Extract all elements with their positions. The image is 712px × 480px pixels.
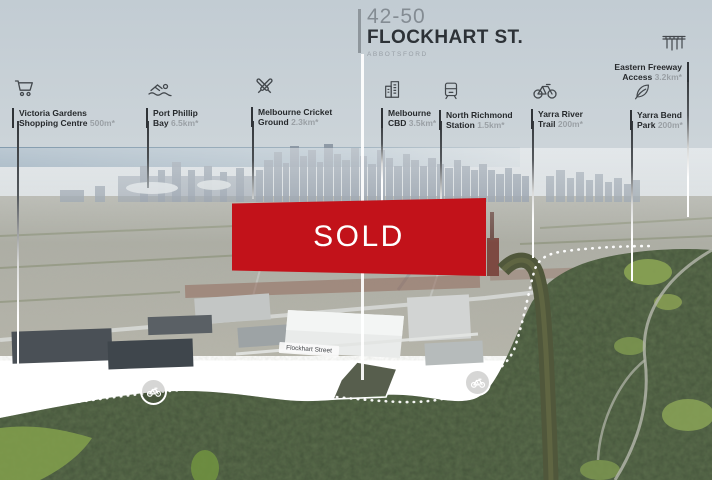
poi-port-phillip-bay: Port Phillip Bay 6.5km* xyxy=(146,76,198,128)
sold-label: SOLD xyxy=(313,220,405,254)
title-street-name: FLOCKHART ST. xyxy=(367,28,523,48)
swimmer-icon xyxy=(147,76,173,105)
poi-distance: 3.2km* xyxy=(655,72,682,82)
freeway-icon xyxy=(660,30,688,59)
leader-line xyxy=(631,121,633,281)
poi-distance: 6.5km* xyxy=(171,118,198,128)
bike-trail-badge xyxy=(464,369,491,396)
poi-yarra-river-trail: Yarra River Trail 200m* xyxy=(531,79,583,129)
train-icon xyxy=(440,80,462,107)
sold-banner: SOLD xyxy=(232,198,486,276)
title-accent-bar xyxy=(358,9,361,53)
bike-trail-badge xyxy=(140,378,167,405)
poi-melbourne-cbd: Melbourne CBD 3.5km* xyxy=(381,78,436,128)
cricket-bats-icon xyxy=(252,74,277,104)
title-street-number: 42-50 xyxy=(367,6,523,28)
bicycle-icon xyxy=(532,79,558,106)
poi-label: Yarra Bend Park 200m* xyxy=(630,110,683,130)
poi-label: Yarra River Trail 200m* xyxy=(531,109,583,129)
poi-distance: 1.5km* xyxy=(477,120,504,130)
poi-label: Melbourne CBD 3.5km* xyxy=(381,108,436,128)
poi-label: Melbourne Cricket Ground 2.3km* xyxy=(251,107,332,127)
shopping-cart-icon xyxy=(13,76,37,105)
leader-line xyxy=(532,121,534,258)
poi-eastern-freeway: Eastern Freeway Access 3.2km* xyxy=(614,30,689,82)
buildings-icon xyxy=(382,78,404,105)
listing-hero-image: 42-50 FLOCKHART ST. ABBOTSFORD SOLD Vict… xyxy=(0,0,712,480)
poi-distance: 500m* xyxy=(90,118,115,128)
poi-label: North Richmond Station 1.5km* xyxy=(439,110,513,130)
bicycle-icon xyxy=(146,385,162,398)
leader-line xyxy=(252,121,254,199)
poi-label: Eastern Freeway Access 3.2km* xyxy=(614,62,689,82)
poi-mcg: Melbourne Cricket Ground 2.3km* xyxy=(251,74,332,127)
poi-distance: 200m* xyxy=(658,120,683,130)
bicycle-icon xyxy=(470,376,486,389)
leader-line xyxy=(381,121,383,203)
title-suburb: ABBOTSFORD xyxy=(367,51,523,58)
leader-line xyxy=(147,121,149,188)
poi-label: Port Phillip Bay 6.5km* xyxy=(146,108,198,128)
leaf-icon xyxy=(631,80,653,107)
site-boundary-outline xyxy=(333,362,397,399)
poi-distance: 200m* xyxy=(558,119,583,129)
leader-line xyxy=(687,76,689,217)
poi-north-richmond-station: North Richmond Station 1.5km* xyxy=(439,80,513,130)
poi-victoria-gardens: Victoria Gardens Shopping Centre 500m* xyxy=(12,76,115,128)
property-title: 42-50 FLOCKHART ST. ABBOTSFORD xyxy=(358,6,523,58)
poi-yarra-bend-park: Yarra Bend Park 200m* xyxy=(630,80,683,130)
poi-distance: 3.5km* xyxy=(409,118,436,128)
leader-line xyxy=(17,121,19,394)
poi-label: Victoria Gardens Shopping Centre 500m* xyxy=(12,108,115,128)
poi-distance: 2.3km* xyxy=(291,117,318,127)
